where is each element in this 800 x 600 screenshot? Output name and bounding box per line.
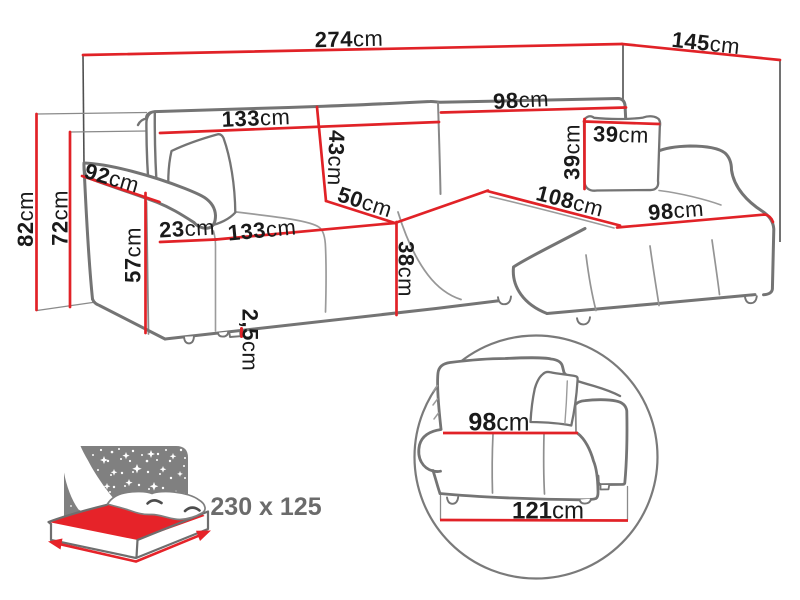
svg-text:82cm: 82cm: [13, 191, 38, 247]
svg-text:43cm: 43cm: [323, 130, 350, 187]
svg-text:230 x 125: 230 x 125: [210, 493, 321, 521]
svg-text:98cm: 98cm: [647, 196, 705, 225]
svg-text:98cm: 98cm: [468, 409, 529, 437]
svg-text:92cm: 92cm: [82, 158, 143, 197]
svg-text:274cm: 274cm: [314, 26, 383, 52]
svg-text:145cm: 145cm: [671, 27, 742, 59]
svg-text:98cm: 98cm: [492, 86, 549, 114]
svg-text:50cm: 50cm: [335, 182, 396, 223]
svg-text:38cm: 38cm: [394, 241, 419, 297]
svg-text:133cm: 133cm: [227, 214, 298, 245]
svg-text:23cm: 23cm: [158, 215, 215, 243]
svg-text:133cm: 133cm: [221, 104, 290, 132]
svg-text:39cm: 39cm: [593, 121, 649, 147]
svg-text:2,5cm: 2,5cm: [238, 309, 263, 371]
svg-text:57cm: 57cm: [121, 227, 146, 283]
svg-text:121cm: 121cm: [512, 498, 584, 525]
svg-text:39cm: 39cm: [560, 124, 585, 180]
svg-text:72cm: 72cm: [48, 190, 73, 246]
